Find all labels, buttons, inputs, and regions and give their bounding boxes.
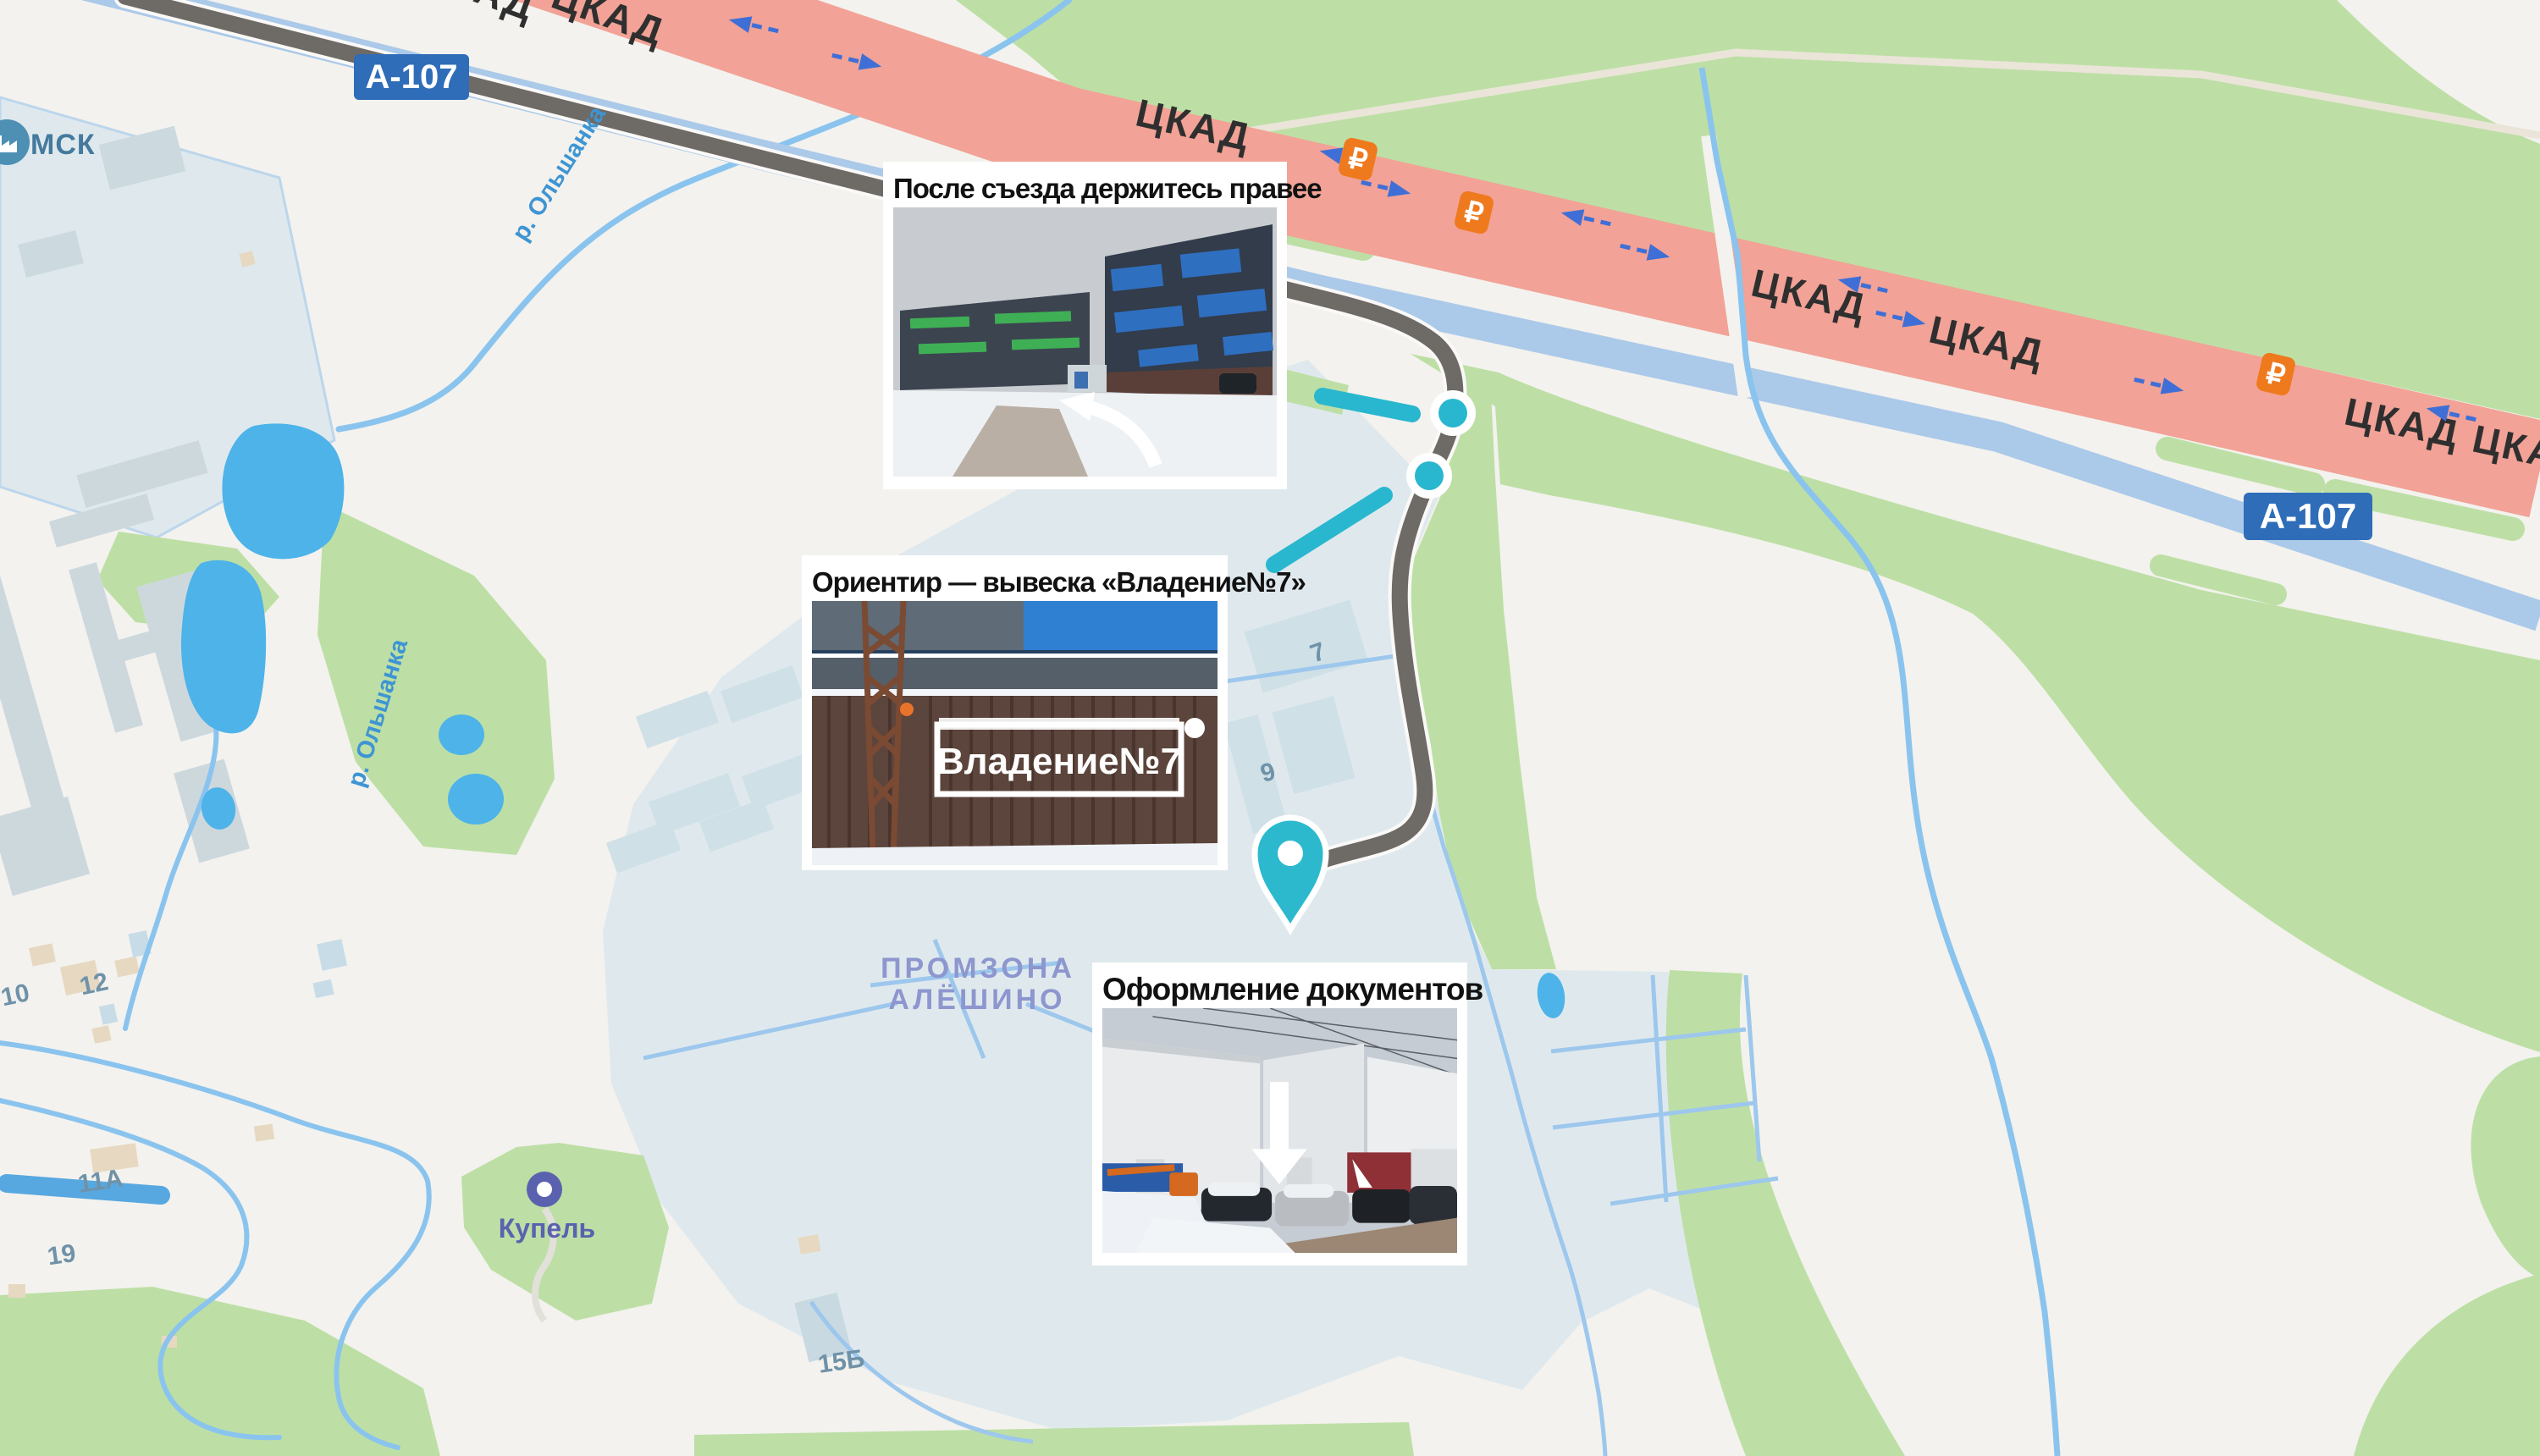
zone-label-line1: ПРОМЗОНА <box>881 952 1075 984</box>
callout-caption: После съезда держитесь правее <box>893 170 1277 207</box>
road-badge-a107-right: А-107 <box>2244 493 2372 540</box>
zone-label-line2: АЛЁШИНО <box>888 984 1065 1016</box>
building-number: 19 <box>46 1239 78 1271</box>
industrial-zone-label: ПРОМЗОНА АЛЁШИНО <box>881 952 1075 1016</box>
road-badge-label: А-107 <box>366 58 458 96</box>
city-label: МСК <box>30 129 96 161</box>
photo-paperwork <box>1102 1008 1457 1253</box>
route-waypoint-1 <box>1430 390 1476 436</box>
map-canvas[interactable]: ЦКАД ЦКАД ЦКАД ЦКАД ЦКАД ЦКАД ЦКАД ₽ ₽ ₽ <box>0 0 2540 1456</box>
building-number: 12 <box>77 968 111 1001</box>
road-badge-a107-left: А-107 <box>354 54 469 100</box>
callout-paperwork: Оформление документов <box>1092 962 1467 1266</box>
callout-after-exit: После съезда держитесь правее <box>883 162 1287 489</box>
poi-label: Купель <box>499 1213 595 1244</box>
callout-caption: Ориентир — вывеска «Владение№7» <box>812 564 1218 601</box>
photo-landmark-sign: Владение№7 <box>812 601 1218 865</box>
sign-text: Владение№7 <box>937 741 1181 782</box>
photo-after-exit <box>893 207 1277 477</box>
road-badge-label: А-107 <box>2260 496 2356 536</box>
route-waypoint-2 <box>1406 453 1452 499</box>
callout-landmark-sign: Ориентир — вывеска «Владение№7» Владение… <box>802 555 1228 870</box>
building-number: 10 <box>0 979 32 1012</box>
callout-caption: Оформление документов <box>1102 971 1457 1008</box>
